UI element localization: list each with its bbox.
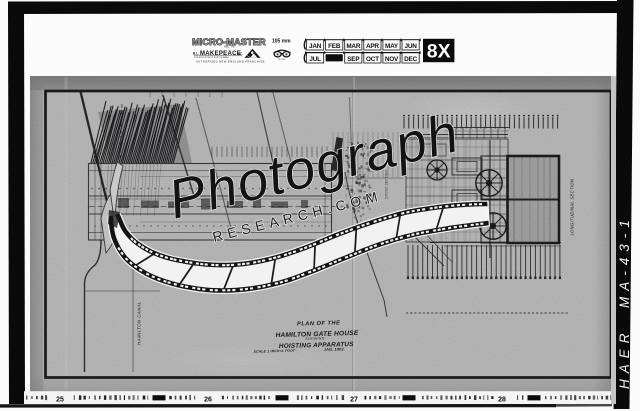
svg-text:26: 26 bbox=[204, 396, 212, 403]
svg-text:25: 25 bbox=[56, 396, 64, 403]
svg-text:INC.: INC. bbox=[237, 51, 243, 55]
svg-text:OCT: OCT bbox=[366, 56, 379, 63]
svg-text:AUTHORIZED NEW ENGLAND FRANCHI: AUTHORIZED NEW ENGLAND FRANCHISE bbox=[196, 60, 265, 64]
svg-text:28: 28 bbox=[498, 396, 506, 403]
svg-text:MAR: MAR bbox=[346, 43, 361, 50]
svg-text:FEB: FEB bbox=[328, 43, 341, 50]
svg-text:27: 27 bbox=[350, 396, 358, 403]
svg-text:105 mm: 105 mm bbox=[272, 39, 291, 45]
svg-text:SEP: SEP bbox=[347, 56, 360, 63]
svg-text:MAY: MAY bbox=[385, 43, 399, 50]
svg-text:NO 5B: NO 5B bbox=[279, 59, 286, 61]
svg-text:8X: 8X bbox=[427, 40, 451, 62]
svg-text:JUN: JUN bbox=[405, 43, 418, 50]
svg-text:REG. T.M.: REG. T.M. bbox=[224, 46, 235, 49]
svg-text:JAN: JAN bbox=[309, 43, 322, 50]
svg-text:HAER MA-43-1: HAER MA-43-1 bbox=[617, 214, 632, 389]
svg-text:B.L.: B.L. bbox=[193, 52, 199, 56]
svg-text:JUL: JUL bbox=[309, 56, 321, 63]
svg-text:DEC: DEC bbox=[404, 56, 417, 63]
svg-text:APR: APR bbox=[366, 43, 379, 50]
svg-text:NOV: NOV bbox=[385, 56, 399, 63]
svg-text:1235 BOYLSTON ST. BOSTON MASS.: 1235 BOYLSTON ST. BOSTON MASS. bbox=[194, 56, 229, 59]
